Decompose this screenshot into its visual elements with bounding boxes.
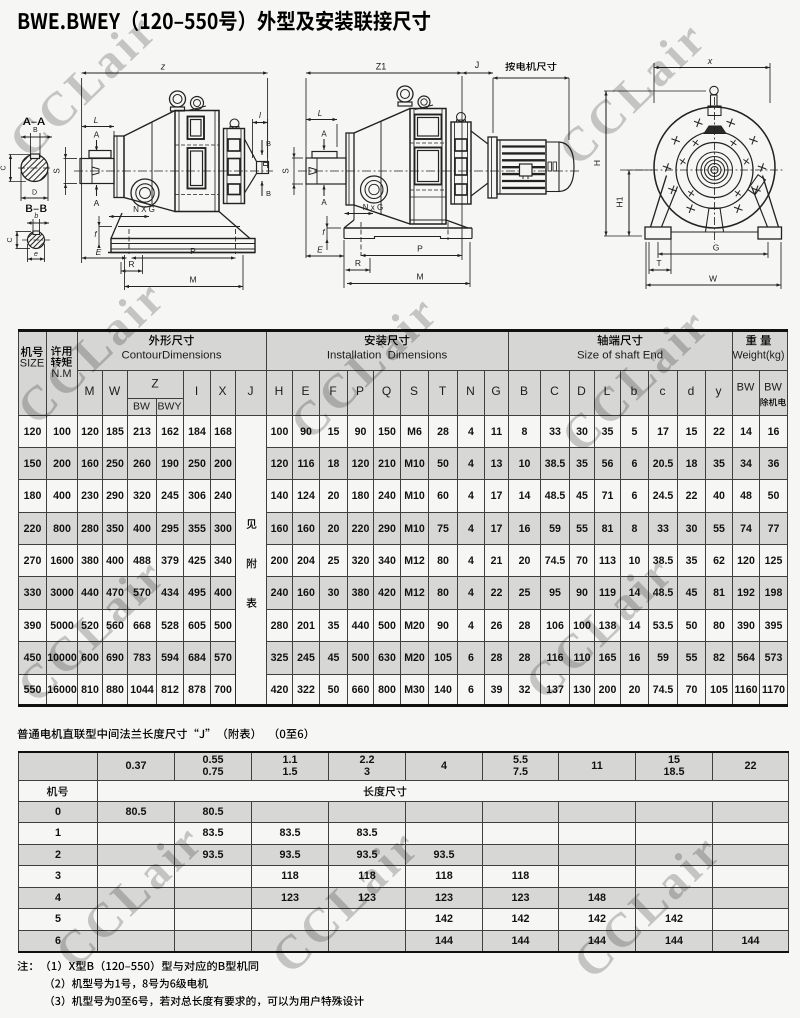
- svg-text:BW: BW: [737, 382, 755, 394]
- svg-text:G: G: [713, 243, 720, 253]
- svg-text:C: C: [7, 237, 14, 242]
- svg-text:d: d: [688, 384, 695, 398]
- svg-text:E: E: [317, 245, 323, 255]
- svg-text:b: b: [34, 213, 38, 220]
- svg-text:e: e: [34, 251, 38, 258]
- svg-text:T: T: [656, 258, 661, 268]
- svg-text:M: M: [189, 275, 196, 285]
- svg-text:E: E: [96, 247, 102, 257]
- svg-text:B: B: [520, 384, 528, 398]
- svg-text:N: N: [466, 384, 475, 398]
- svg-text:S: S: [53, 168, 62, 173]
- svg-text:G: G: [491, 384, 500, 398]
- svg-text:C: C: [550, 384, 559, 398]
- svg-text:R: R: [128, 259, 134, 269]
- svg-text:Weight(kg): Weight(kg): [732, 350, 784, 362]
- svg-text:A: A: [94, 130, 100, 140]
- svg-text:W: W: [109, 384, 121, 398]
- svg-text:Z: Z: [151, 377, 158, 391]
- svg-text:D: D: [32, 190, 37, 197]
- svg-text:f: f: [94, 230, 97, 239]
- svg-text:A: A: [94, 198, 100, 208]
- svg-text:A: A: [321, 130, 327, 139]
- svg-text:J: J: [248, 384, 254, 398]
- svg-text:P: P: [417, 244, 423, 254]
- svg-text:BW: BW: [764, 382, 782, 394]
- svg-text:Z1: Z1: [376, 62, 387, 72]
- svg-text:H1: H1: [615, 196, 625, 207]
- svg-text:y: y: [716, 384, 722, 398]
- svg-text:L: L: [94, 115, 99, 125]
- svg-text:f: f: [322, 228, 325, 237]
- svg-text:W: W: [709, 274, 717, 284]
- svg-text:B: B: [266, 189, 271, 198]
- svg-text:J: J: [475, 60, 480, 70]
- svg-text:P: P: [190, 246, 196, 256]
- svg-text:H: H: [275, 384, 284, 398]
- svg-text:T: T: [439, 384, 447, 398]
- svg-text:I: I: [195, 384, 198, 398]
- svg-text:X: X: [218, 384, 226, 398]
- svg-text:I: I: [259, 111, 262, 120]
- svg-text:z: z: [160, 62, 166, 72]
- svg-text:S: S: [410, 384, 418, 398]
- svg-text:A: A: [321, 198, 327, 207]
- svg-text:M: M: [416, 272, 423, 282]
- svg-text:C: C: [1, 165, 8, 170]
- svg-text:ContourDimensions: ContourDimensions: [121, 350, 221, 362]
- svg-text:R: R: [355, 258, 361, 268]
- svg-text:L: L: [318, 109, 322, 118]
- svg-text:B: B: [266, 139, 271, 148]
- svg-text:BWY: BWY: [158, 401, 182, 413]
- svg-text:BW: BW: [133, 401, 150, 413]
- svg-text:N x G: N x G: [363, 203, 383, 212]
- svg-text:S: S: [282, 168, 291, 173]
